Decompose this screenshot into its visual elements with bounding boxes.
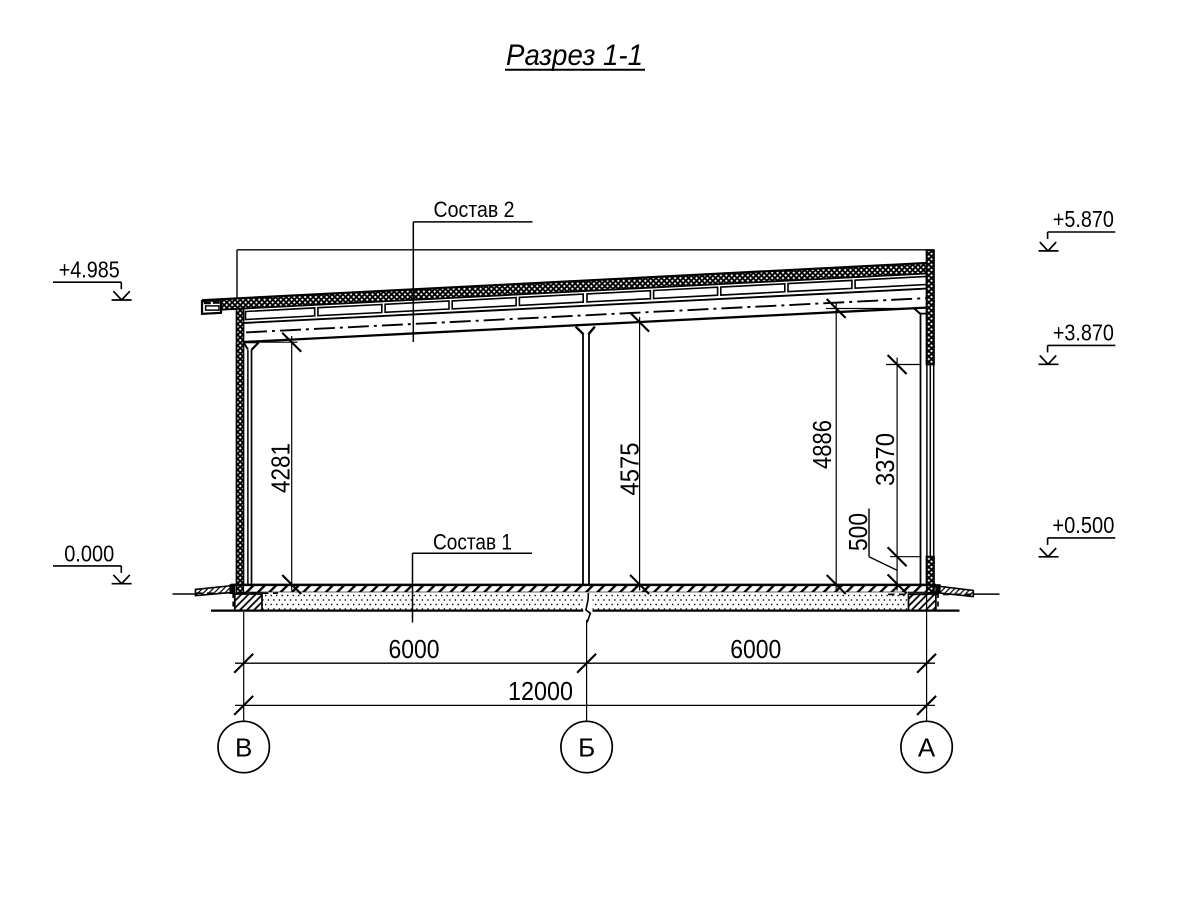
svg-text:+3.870: +3.870 — [1053, 319, 1114, 345]
svg-text:+5.870: +5.870 — [1053, 206, 1114, 232]
svg-text:6000: 6000 — [389, 634, 440, 664]
svg-text:6000: 6000 — [730, 634, 781, 664]
svg-text:500: 500 — [843, 513, 873, 551]
svg-text:0.000: 0.000 — [64, 540, 114, 566]
svg-text:Состав 2: Состав 2 — [434, 197, 515, 222]
svg-text:12000: 12000 — [508, 676, 573, 706]
svg-text:Разрез 1-1: Разрез 1-1 — [506, 39, 643, 72]
svg-text:Состав 1: Состав 1 — [433, 529, 512, 554]
svg-text:4575: 4575 — [614, 443, 644, 496]
svg-text:4281: 4281 — [265, 443, 295, 493]
svg-text:А: А — [918, 732, 936, 762]
svg-text:Б: Б — [578, 732, 595, 762]
svg-text:3370: 3370 — [870, 433, 900, 486]
svg-text:+0.500: +0.500 — [1052, 512, 1114, 538]
svg-text:В: В — [235, 732, 252, 762]
svg-text:+4.985: +4.985 — [59, 257, 120, 283]
svg-text:4886: 4886 — [807, 420, 837, 469]
